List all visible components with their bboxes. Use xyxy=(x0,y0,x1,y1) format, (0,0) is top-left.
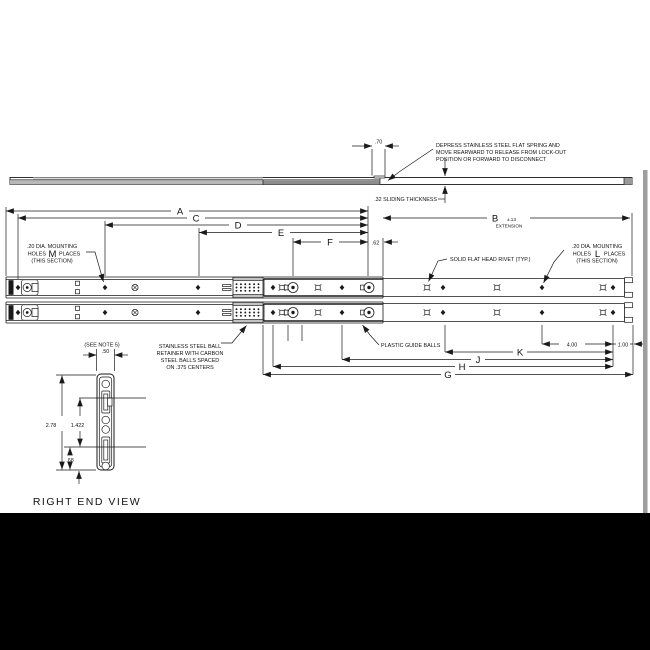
right-note-places: PLACES xyxy=(604,252,626,258)
left-mounting-holes-note: .20 DIA. MOUNTING HOLES M PLACES (THIS S… xyxy=(27,244,104,282)
dim-4-00: 4.00 xyxy=(567,343,578,349)
rivet-note-text: SOLID FLAT HEAD RIVET (TYP.) xyxy=(450,257,531,263)
guide-balls-note-text: PLASTIC GUIDE BALLS xyxy=(381,343,441,349)
dim-J: J xyxy=(476,355,481,366)
spring-note-line1: DEPRESS STAINLESS STEEL FLAT SPRING AND xyxy=(436,143,560,149)
spring-note-line3: POSITION OR FORWARD TO DISCONNECT xyxy=(436,157,547,163)
lower-rail-section xyxy=(6,302,633,323)
flat-spring xyxy=(374,176,385,178)
dim-D: D xyxy=(235,221,242,232)
dim-height: 2.78 xyxy=(46,423,57,429)
drawer-slide-drawing: .70 DEPRESS STAINLESS STEEL FLAT SPRING … xyxy=(0,0,650,650)
upper-rail-section xyxy=(6,277,633,298)
dim-1-00: 1.00 xyxy=(618,343,629,349)
dim-sliding-thickness: .32 SLIDING THICKNESS xyxy=(374,197,437,203)
bottom-dimensions: 4.00 1.00 K J H G xyxy=(263,325,646,381)
section-profile xyxy=(97,374,114,470)
dim-G: G xyxy=(444,370,451,381)
left-note-places: PLACES xyxy=(59,252,81,258)
dim-spring-offset: .70 xyxy=(375,140,383,146)
right-note-holes: HOLES xyxy=(573,252,592,258)
top-view: .70 DEPRESS STAINLESS STEEL FLAT SPRING … xyxy=(10,140,632,204)
dim-F: F xyxy=(327,238,333,249)
see-note: (SEE NOTE 5) xyxy=(84,343,120,349)
retainer-note-line1: STAINLESS STEEL BALL xyxy=(159,344,221,350)
front-view-rails xyxy=(6,277,633,323)
dim-E: E xyxy=(278,228,284,239)
dim-bottom: .68 xyxy=(66,458,74,464)
left-note-line3: (THIS SECTION) xyxy=(31,259,73,265)
retainer-note-line3: STEEL BALLS SPACED xyxy=(161,358,220,364)
dim-A: A xyxy=(177,207,184,218)
end-view-caption: RIGHT END VIEW xyxy=(33,496,141,508)
dim-62: .62 xyxy=(372,241,380,247)
right-border-strip xyxy=(643,170,648,513)
retainer-note: STAINLESS STEEL BALL RETAINER WITH CARBO… xyxy=(157,326,247,372)
right-note-line3: (THIS SECTION) xyxy=(576,259,618,265)
bar-end-step xyxy=(624,178,632,185)
guide-balls-note: PLASTIC GUIDE BALLS xyxy=(363,325,441,349)
mid-overlap-edge xyxy=(263,181,380,185)
left-note-holes: HOLES xyxy=(28,252,47,258)
dim-K: K xyxy=(517,348,524,359)
retainer-note-line2: RETAINER WITH CARBON xyxy=(157,351,224,357)
right-mounting-holes-note: .20 DIA. MOUNTING HOLES L PLACES (THIS S… xyxy=(544,244,626,283)
dim-C: C xyxy=(193,214,200,225)
dim-H: H xyxy=(459,362,466,373)
technical-drawing-canvas: .70 DEPRESS STAINLESS STEEL FLAT SPRING … xyxy=(0,0,650,650)
dim-B-tolerance: ±.13 xyxy=(507,217,516,222)
dim-inner: 1.422 xyxy=(71,423,85,429)
spring-note-line2: MOVE REARWARD TO RELEASE FROM LOCK-OUT xyxy=(436,150,567,156)
component-notes: STAINLESS STEEL BALL RETAINER WITH CARBO… xyxy=(157,325,441,371)
dim-width: .50 xyxy=(102,349,110,355)
bottom-black-band xyxy=(0,513,650,650)
rivet-note: SOLID FLAT HEAD RIVET (TYP.) xyxy=(429,257,531,282)
retainer-note-line4: ON .375 CENTERS xyxy=(166,365,214,371)
dim-B-extension-label: EXTENSION xyxy=(496,224,523,229)
end-view: (SEE NOTE 5) .50 2.78 1.422 xyxy=(33,343,146,509)
